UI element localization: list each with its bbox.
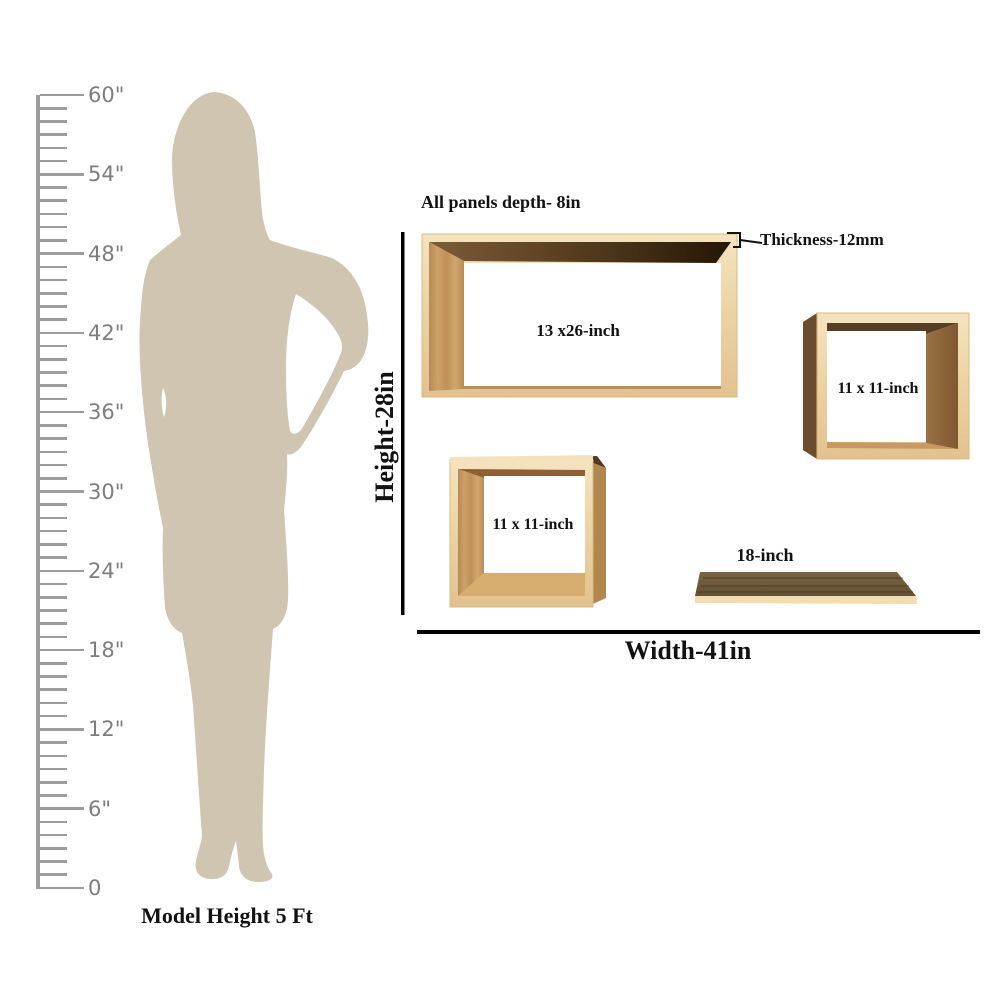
- shelf-plank: [695, 572, 917, 604]
- shelf-plank-size-label: 18-inch: [685, 545, 845, 566]
- thickness-leader-line: [740, 240, 762, 243]
- shelf-square-right-size-label: 11 x 11-inch: [798, 380, 958, 398]
- width-dimension-label: Width-41in: [538, 636, 838, 666]
- model-height-caption: Model Height 5 Ft: [97, 903, 357, 929]
- shelf-drawings: [0, 0, 1000, 1000]
- thickness-note: Thickness-12mm: [760, 230, 884, 250]
- depth-note: All panels depth- 8in: [421, 192, 581, 213]
- product-dimension-diagram: 60"54"48"42"36"30"24"18"12"6"0: [0, 0, 1000, 1000]
- shelf-large-rect: [422, 234, 737, 397]
- shelf-large-size-label: 13 x26-inch: [478, 321, 678, 341]
- width-dimension-line: [417, 630, 980, 634]
- shelf-square-left-size-label: 11 x 11-inch: [453, 516, 613, 534]
- height-dimension-label: Height-28in: [370, 316, 412, 558]
